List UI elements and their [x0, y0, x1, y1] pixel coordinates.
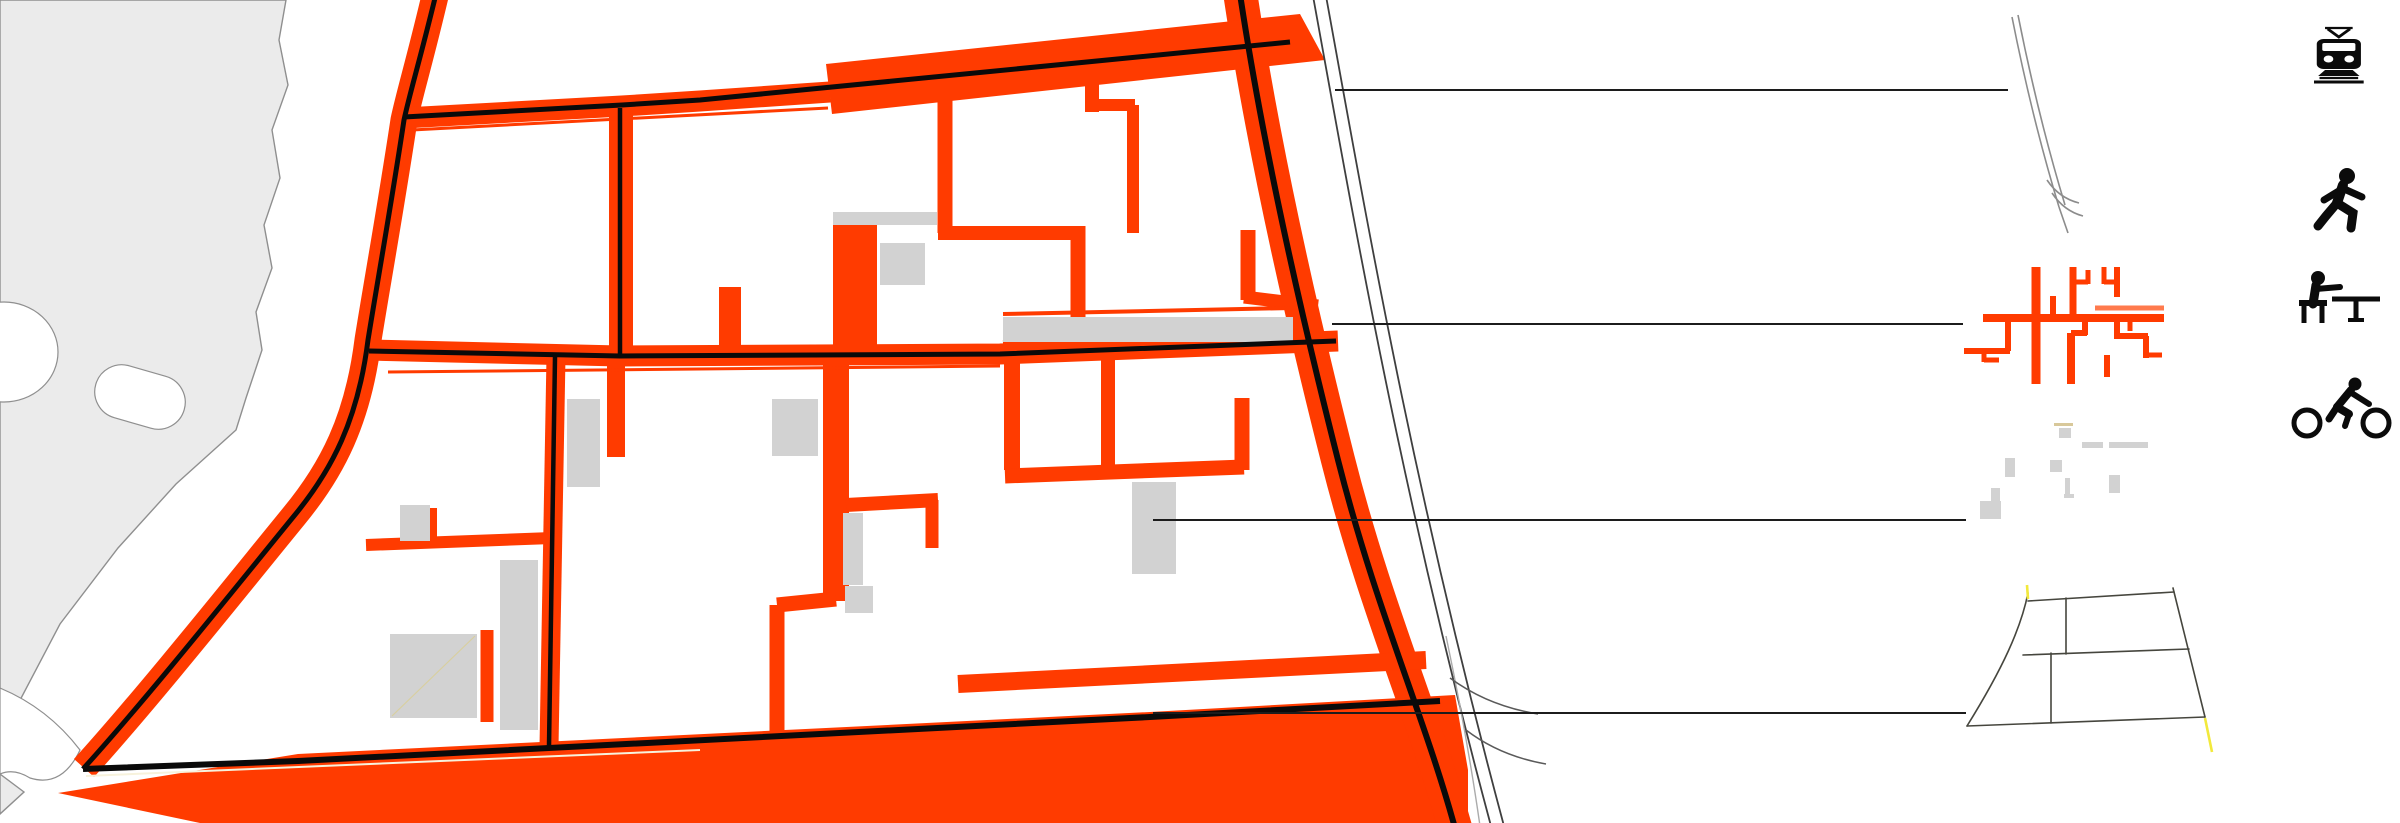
south-boulevard-wedge: [58, 695, 1468, 823]
cycle-route-highlight-top: [2027, 585, 2028, 599]
harbor-channel: [0, 688, 80, 780]
furniture-plazas-diagram: [1980, 423, 2148, 519]
cyclist-icon: [2294, 378, 2389, 437]
cycle-outline-diagram: [1967, 585, 2212, 752]
pedestrian-icon: [2318, 168, 2362, 228]
tram-icon: [2314, 28, 2364, 82]
seated-person-icon: [2299, 271, 2380, 323]
figure-canvas: [0, 0, 2400, 823]
cycle-route-highlight-bottom: [2205, 718, 2212, 752]
parallel-bottom-street: [958, 660, 1426, 684]
pedestrian-network-diagram: [1964, 267, 2164, 384]
land-wedge-south: [0, 774, 24, 814]
tram-tracks-diagram: [2012, 15, 2083, 233]
